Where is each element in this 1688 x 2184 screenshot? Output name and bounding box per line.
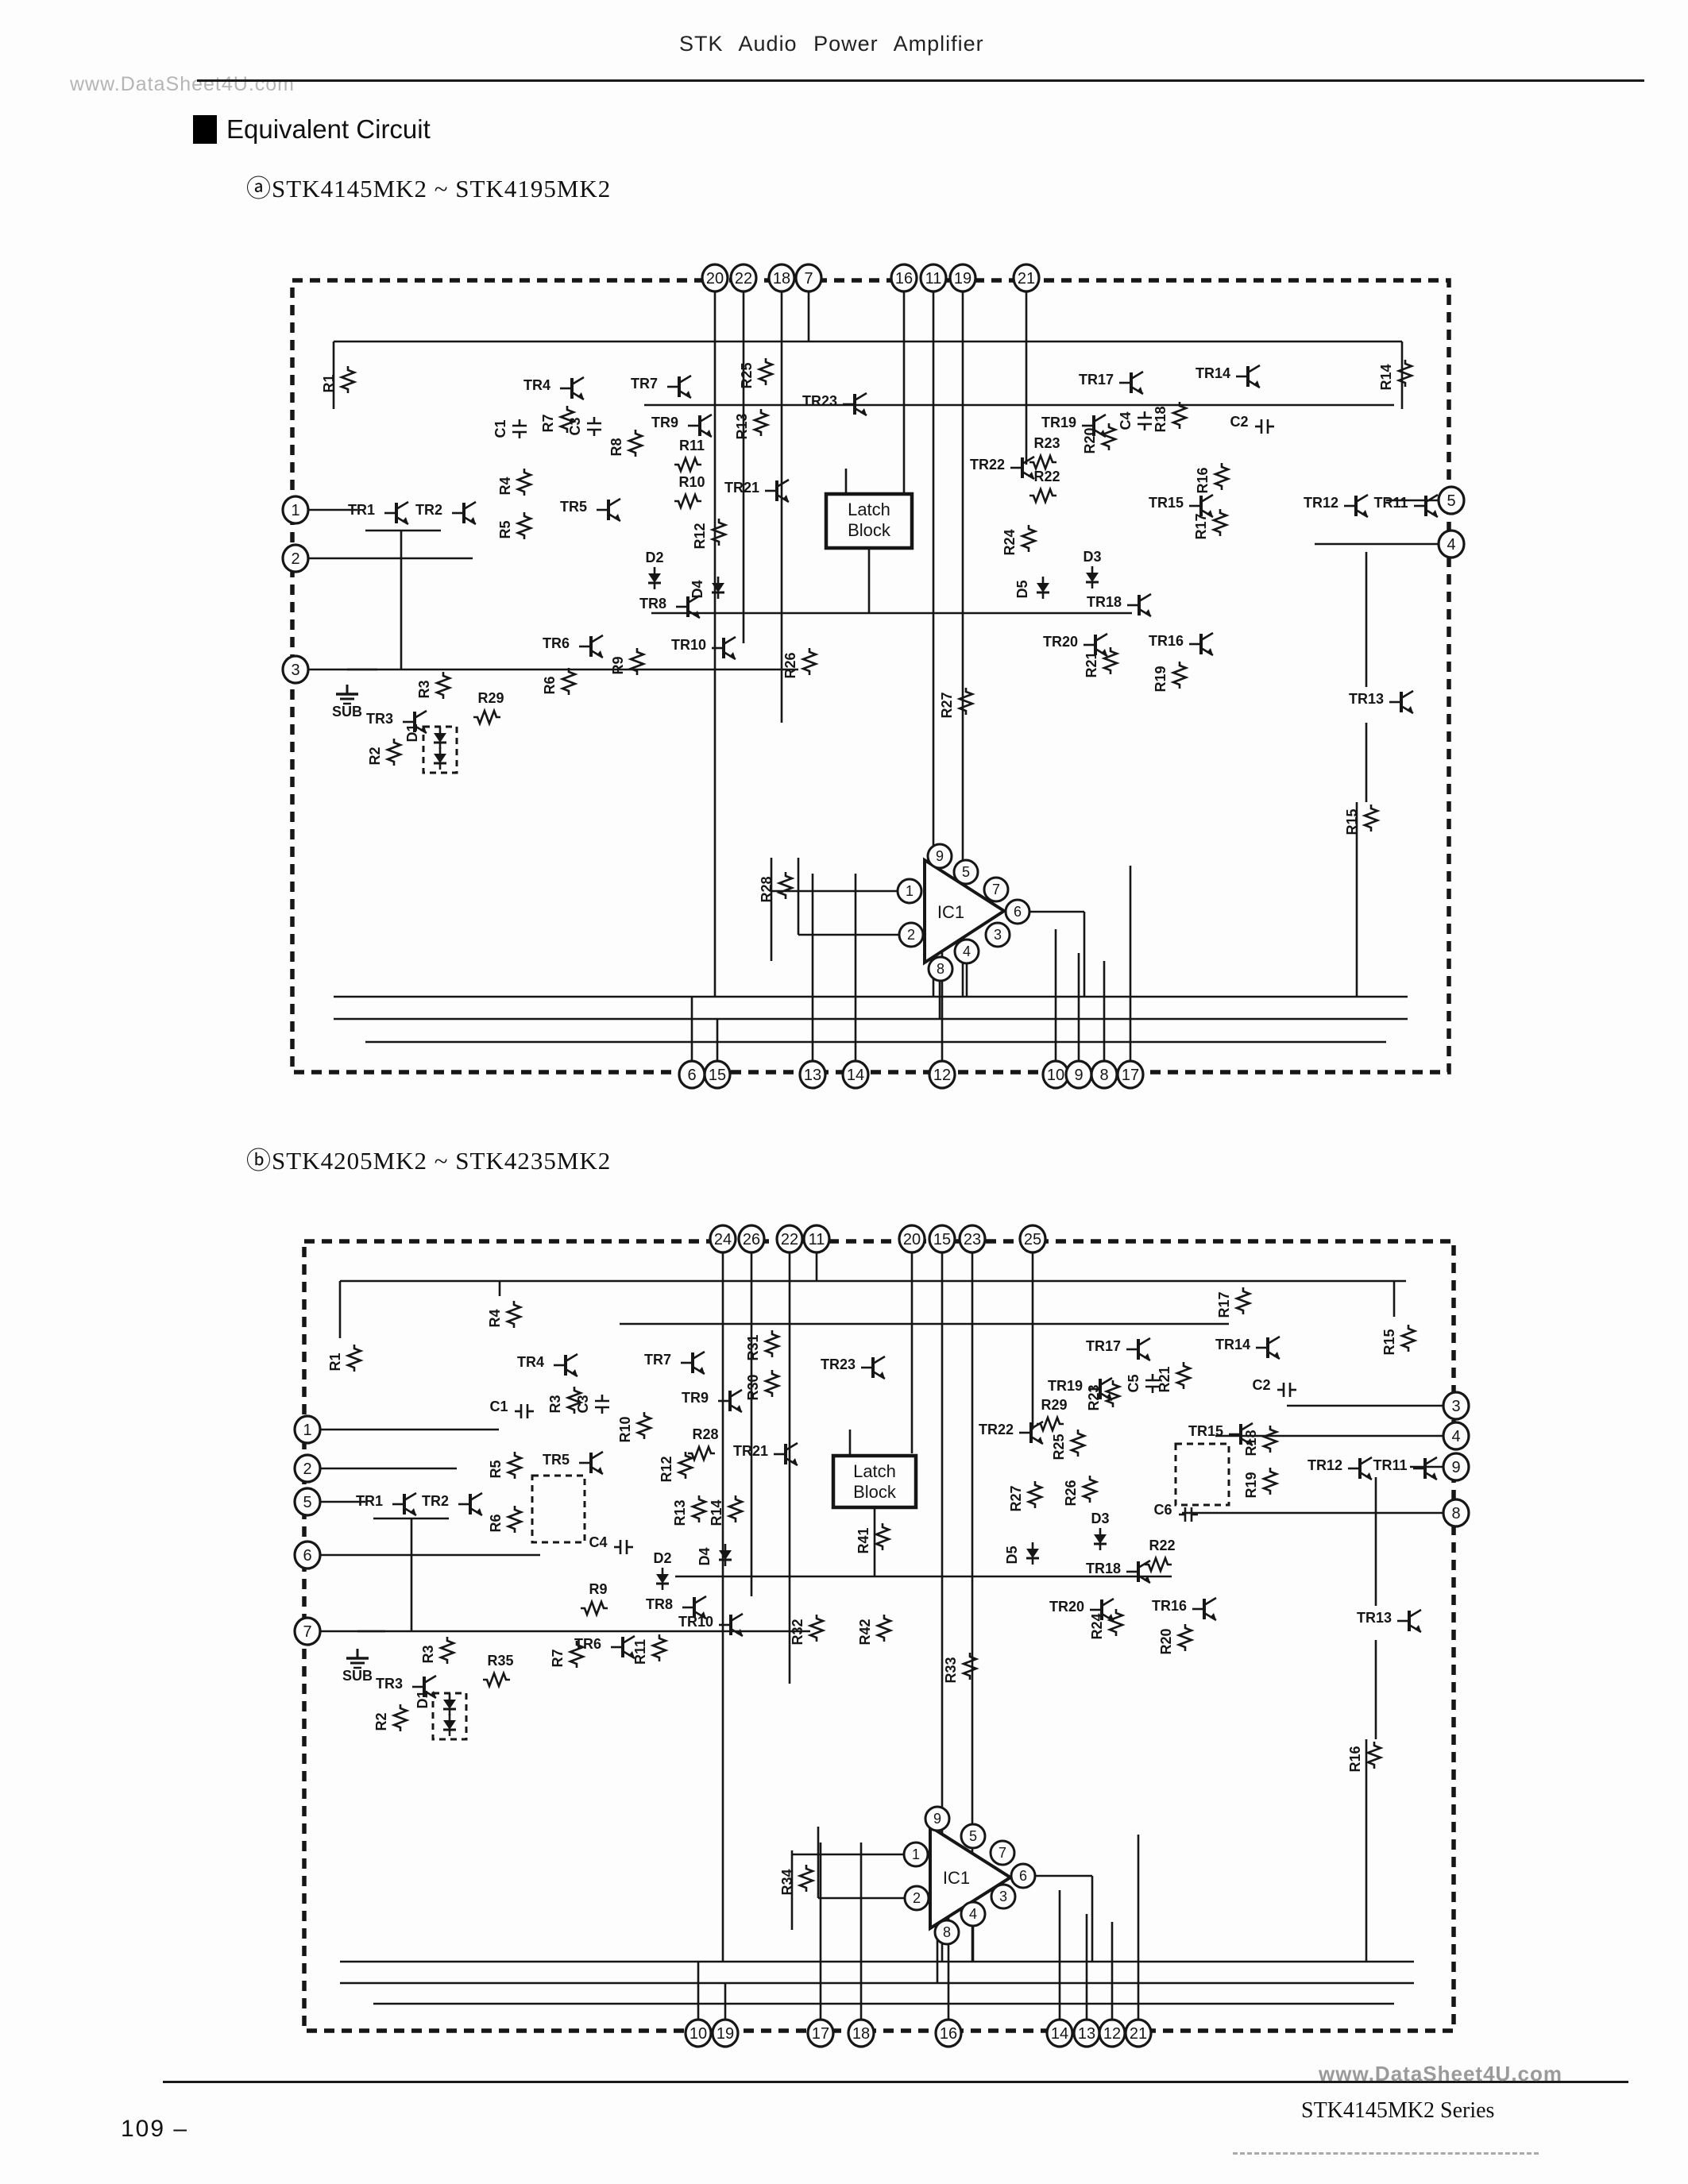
svg-text:TR7: TR7 xyxy=(644,1352,671,1368)
resistor-R19: R19 xyxy=(1153,662,1186,693)
svg-text:R28: R28 xyxy=(692,1426,718,1442)
resistor-R11: R11 xyxy=(632,1634,666,1665)
resistor-R5: R5 xyxy=(497,512,531,539)
svg-text:TR19: TR19 xyxy=(1048,1378,1083,1394)
transistor-TR23: TR23 xyxy=(821,1356,885,1379)
svg-text:TR13: TR13 xyxy=(1349,691,1384,707)
ic1-pin-5: 5 xyxy=(954,860,978,884)
svg-text:R12: R12 xyxy=(659,1456,674,1482)
circuit-border xyxy=(292,280,1449,1072)
svg-text:16: 16 xyxy=(895,270,913,287)
svg-text:R7: R7 xyxy=(540,414,556,432)
resistor-R13: R13 xyxy=(672,1495,705,1526)
pin-7: 7 xyxy=(796,264,821,291)
dashed-box xyxy=(1176,1444,1229,1505)
diode-D3: D3 xyxy=(1091,1511,1109,1550)
transistor-TR5: TR5 xyxy=(560,499,620,521)
svg-text:R19: R19 xyxy=(1153,666,1168,692)
resistor-R10: R10 xyxy=(674,474,705,507)
svg-text:26: 26 xyxy=(743,1231,760,1248)
svg-text:10: 10 xyxy=(1047,1067,1064,1084)
transistor-TR7: TR7 xyxy=(644,1352,705,1374)
transistor-TR9: TR9 xyxy=(651,415,712,437)
resistor-R26: R26 xyxy=(782,648,816,679)
svg-text:Latch: Latch xyxy=(848,500,890,519)
resistor-R3: R3 xyxy=(420,1637,454,1664)
transistor-TR16: TR16 xyxy=(1149,633,1213,655)
svg-text:R15: R15 xyxy=(1344,808,1360,835)
svg-text:R18: R18 xyxy=(1153,406,1168,432)
resistor-R6: R6 xyxy=(488,1506,521,1533)
svg-text:TR2: TR2 xyxy=(415,502,442,518)
pin-11: 11 xyxy=(804,1225,829,1252)
svg-text:R22: R22 xyxy=(1149,1538,1175,1553)
svg-text:R26: R26 xyxy=(782,652,798,678)
svg-text:4: 4 xyxy=(969,1906,977,1922)
transistor-TR21: TR21 xyxy=(733,1443,798,1465)
resistor-R2: R2 xyxy=(367,739,400,766)
page-number: 109 – xyxy=(121,2116,188,2143)
resistor-R26: R26 xyxy=(1063,1476,1096,1507)
resistor-R22: R22 xyxy=(1029,469,1060,502)
datasheet-page: www.DataSheet4U.com STK Audio Power Ampl… xyxy=(0,0,1688,2184)
pin-9: 9 xyxy=(1443,1453,1469,1480)
capacitor-C2: C2 xyxy=(1230,414,1274,434)
resistor-R10: R10 xyxy=(617,1412,651,1443)
svg-text:5: 5 xyxy=(303,1494,311,1511)
svg-text:4: 4 xyxy=(963,943,971,959)
svg-text:19: 19 xyxy=(717,2025,734,2043)
transistor-TR14: TR14 xyxy=(1215,1337,1280,1359)
resistor-R18: R18 xyxy=(1243,1426,1277,1457)
watermark-top: www.DataSheet4U.com xyxy=(70,73,295,96)
circuit-a-heading: ⓐSTK4145MK2 ~ STK4195MK2 xyxy=(246,168,611,204)
svg-text:3: 3 xyxy=(994,927,1002,943)
svg-text:12: 12 xyxy=(933,1067,951,1084)
svg-text:R2: R2 xyxy=(373,1712,389,1731)
svg-text:R2: R2 xyxy=(367,747,383,765)
svg-text:R30: R30 xyxy=(745,1374,761,1400)
transistor-TR17: TR17 xyxy=(1079,372,1143,394)
svg-text:1: 1 xyxy=(906,883,914,899)
ic1-pin-4: 4 xyxy=(955,940,979,963)
pin-6: 6 xyxy=(679,1061,705,1088)
svg-text:R26: R26 xyxy=(1063,1480,1079,1506)
transistor-TR16: TR16 xyxy=(1152,1598,1216,1620)
svg-text:TR14: TR14 xyxy=(1196,365,1230,381)
ic1-pin-9: 9 xyxy=(925,1807,949,1831)
transistor-TR11: TR11 xyxy=(1373,495,1438,517)
svg-text:TR22: TR22 xyxy=(970,457,1005,473)
svg-text:9: 9 xyxy=(1451,1459,1460,1476)
resistor-R13: R13 xyxy=(734,409,767,440)
pin-17: 17 xyxy=(1118,1061,1143,1088)
svg-text:2: 2 xyxy=(913,1890,921,1906)
svg-text:6: 6 xyxy=(1019,1868,1027,1884)
svg-text:R17: R17 xyxy=(1216,1291,1232,1318)
svg-text:TR5: TR5 xyxy=(560,499,587,515)
transistor-TR1: TR1 xyxy=(356,1493,416,1515)
svg-text:2: 2 xyxy=(291,550,299,568)
svg-text:R35: R35 xyxy=(487,1653,513,1669)
svg-text:TR10: TR10 xyxy=(671,637,706,653)
resistor-R24: R24 xyxy=(1089,1609,1122,1640)
svg-text:R25: R25 xyxy=(1051,1433,1067,1460)
svg-text:R9: R9 xyxy=(589,1581,607,1597)
resistor-R4: R4 xyxy=(497,469,531,496)
svg-text:C1: C1 xyxy=(489,1399,508,1414)
circuit-b-canvas: R1R4TR4C1R3C3TR7TR9R10R28R12R13R14R5TR5R… xyxy=(302,1239,1456,2033)
ic1-opamp: IC1957126348 xyxy=(898,844,1029,981)
svg-text:TR8: TR8 xyxy=(646,1596,673,1612)
wires xyxy=(320,1252,1456,2020)
svg-text:TR5: TR5 xyxy=(543,1452,570,1468)
pin-16: 16 xyxy=(891,264,917,291)
watermark-bottom: www.DataSheet4U.com xyxy=(1319,2062,1562,2086)
transistor-TR4: TR4 xyxy=(523,377,584,399)
svg-text:R15: R15 xyxy=(1381,1329,1397,1355)
svg-text:TR15: TR15 xyxy=(1149,495,1184,511)
svg-text:R28: R28 xyxy=(759,876,774,902)
svg-text:R33: R33 xyxy=(943,1657,959,1683)
svg-text:R19: R19 xyxy=(1243,1472,1259,1498)
resistor-R23: R23 xyxy=(1029,435,1060,469)
svg-text:D4: D4 xyxy=(697,1547,713,1565)
diode-D2: D2 xyxy=(645,550,663,589)
resistor-R8: R8 xyxy=(608,430,642,457)
transistor-TR7: TR7 xyxy=(631,376,691,398)
pin-7: 7 xyxy=(295,1618,320,1645)
svg-text:R41: R41 xyxy=(856,1527,871,1553)
pin-19: 19 xyxy=(713,2020,738,2047)
bullet-square-icon xyxy=(193,115,217,144)
diode-D2: D2 xyxy=(653,1550,671,1590)
svg-text:R12: R12 xyxy=(692,523,708,549)
svg-text:C4: C4 xyxy=(1118,411,1134,430)
svg-text:R32: R32 xyxy=(790,1619,805,1645)
resistor-R41: R41 xyxy=(856,1523,889,1554)
svg-text:4: 4 xyxy=(1451,1428,1460,1445)
svg-text:R31: R31 xyxy=(745,1334,761,1360)
svg-text:TR3: TR3 xyxy=(366,711,393,727)
dashed-box xyxy=(423,727,457,773)
svg-text:8: 8 xyxy=(1099,1067,1108,1084)
diode-D1: D1 xyxy=(415,1690,431,1708)
svg-text:D2: D2 xyxy=(653,1550,671,1566)
svg-text:R13: R13 xyxy=(734,413,750,439)
resistor-R7: R7 xyxy=(550,1641,583,1668)
svg-text:TR11: TR11 xyxy=(1373,495,1408,511)
resistor-R1: R1 xyxy=(321,366,354,393)
wires xyxy=(308,291,1451,1062)
svg-text:7: 7 xyxy=(999,1845,1006,1861)
resistor-R20: R20 xyxy=(1158,1624,1192,1655)
svg-text:TR4: TR4 xyxy=(517,1354,544,1370)
svg-text:5: 5 xyxy=(962,864,970,880)
resistor-R18: R18 xyxy=(1153,402,1186,433)
svg-text:TR11: TR11 xyxy=(1373,1457,1407,1473)
transistor-TR9: TR9 xyxy=(682,1390,742,1412)
svg-text:TR7: TR7 xyxy=(631,376,658,392)
svg-text:16: 16 xyxy=(940,2025,957,2043)
resistor-R22: R22 xyxy=(1145,1538,1176,1571)
svg-text:7: 7 xyxy=(992,882,1000,897)
capacitor-C1: C1 xyxy=(492,419,527,438)
svg-text:R29: R29 xyxy=(477,690,504,706)
transistor-TR14: TR14 xyxy=(1196,365,1260,388)
svg-text:C2: C2 xyxy=(1252,1377,1270,1393)
svg-text:22: 22 xyxy=(735,270,752,287)
diode-D5: D5 xyxy=(1004,1542,1039,1565)
capacitor-C3: C3 xyxy=(567,417,601,436)
capacitor-C4: C4 xyxy=(589,1534,633,1554)
resistor-R30: R30 xyxy=(745,1370,778,1401)
resistor-R28: R28 xyxy=(759,872,792,903)
capacitor-C4: C4 xyxy=(1118,411,1152,430)
svg-text:R3: R3 xyxy=(416,680,432,698)
transistor-TR21: TR21 xyxy=(724,480,789,502)
transistor-TR6: TR6 xyxy=(543,635,603,658)
svg-text:R4: R4 xyxy=(487,1309,503,1327)
svg-text:R6: R6 xyxy=(542,676,558,694)
pin-2: 2 xyxy=(295,1455,320,1482)
svg-text:TR8: TR8 xyxy=(639,596,666,612)
svg-text:2: 2 xyxy=(303,1461,311,1478)
svg-text:D3: D3 xyxy=(1091,1511,1109,1526)
svg-text:17: 17 xyxy=(812,2025,829,2043)
svg-text:11: 11 xyxy=(925,270,942,287)
pin-14: 14 xyxy=(1047,2020,1072,2047)
transistor-TR12: TR12 xyxy=(1304,495,1368,517)
transistor-TR5: TR5 xyxy=(543,1452,603,1474)
pin-26: 26 xyxy=(739,1225,764,1252)
pin-19: 19 xyxy=(950,264,975,291)
ground-sub-icon: SUB xyxy=(332,685,362,720)
svg-text:D3: D3 xyxy=(1083,549,1101,565)
svg-text:6: 6 xyxy=(303,1547,311,1565)
svg-text:TR12: TR12 xyxy=(1304,495,1338,511)
resistor-R11: R11 xyxy=(674,438,705,471)
svg-text:R7: R7 xyxy=(550,1649,566,1667)
resistor-R20: R20 xyxy=(1082,423,1115,454)
resistor-R34: R34 xyxy=(779,1865,813,1896)
pin-17: 17 xyxy=(808,2020,833,2047)
svg-text:23: 23 xyxy=(964,1231,981,1248)
svg-text:1: 1 xyxy=(291,502,299,519)
header-rule xyxy=(197,79,1644,82)
svg-text:TR4: TR4 xyxy=(523,377,550,393)
circuit-a-canvas: R1TR4C1R7C3R4R5TR5TR1TR2R8TR7TR9R11R10TR… xyxy=(290,278,1451,1075)
svg-text:R23: R23 xyxy=(1033,435,1060,451)
ic1-pin-7: 7 xyxy=(991,1841,1014,1865)
svg-text:TR21: TR21 xyxy=(724,480,759,496)
svg-text:R16: R16 xyxy=(1195,467,1211,493)
svg-text:5: 5 xyxy=(969,1828,977,1844)
page-title: STK Audio Power Amplifier xyxy=(679,32,984,56)
ic1-pin-7: 7 xyxy=(984,878,1008,901)
resistor-R32: R32 xyxy=(790,1615,823,1646)
pin-13: 13 xyxy=(1074,2020,1099,2047)
diode-D4: D4 xyxy=(689,577,724,599)
svg-text:R14: R14 xyxy=(1378,364,1394,390)
resistor-R27: R27 xyxy=(1008,1481,1041,1512)
resistor-R33: R33 xyxy=(943,1653,976,1684)
svg-text:R10: R10 xyxy=(678,474,705,490)
resistor-R16: R16 xyxy=(1347,1742,1381,1773)
svg-text:R21: R21 xyxy=(1083,651,1099,677)
pin-15: 15 xyxy=(705,1061,730,1088)
resistor-R19: R19 xyxy=(1243,1468,1277,1499)
svg-text:R18: R18 xyxy=(1243,1430,1259,1456)
resistor-R12: R12 xyxy=(659,1452,692,1483)
pin-25: 25 xyxy=(1020,1225,1045,1252)
svg-text:13: 13 xyxy=(804,1067,821,1084)
resistor-R25: R25 xyxy=(1051,1430,1084,1461)
svg-text:TR23: TR23 xyxy=(821,1356,856,1372)
svg-text:R5: R5 xyxy=(497,520,513,538)
svg-text:3: 3 xyxy=(999,1889,1007,1904)
svg-text:TR2: TR2 xyxy=(422,1493,449,1509)
pin-8: 8 xyxy=(1443,1499,1469,1526)
dashed-box xyxy=(532,1476,585,1542)
svg-text:C3: C3 xyxy=(575,1395,591,1413)
diode-D1: D1 xyxy=(404,723,420,742)
pin-23: 23 xyxy=(960,1225,985,1252)
svg-text:R5: R5 xyxy=(488,1460,504,1478)
svg-text:TR20: TR20 xyxy=(1043,634,1078,650)
svg-text:6: 6 xyxy=(1014,904,1022,920)
capacitor-C1: C1 xyxy=(489,1399,534,1418)
svg-text:D4: D4 xyxy=(689,580,705,598)
ic1-pin-1: 1 xyxy=(898,879,921,903)
resistor-R42: R42 xyxy=(857,1615,890,1646)
svg-text:13: 13 xyxy=(1078,2025,1095,2043)
resistor-R1: R1 xyxy=(327,1345,361,1372)
svg-text:R3: R3 xyxy=(547,1395,563,1413)
svg-text:C6: C6 xyxy=(1153,1502,1172,1518)
dashed-box xyxy=(433,1693,466,1739)
svg-text:R22: R22 xyxy=(1033,469,1060,484)
pin-5: 5 xyxy=(295,1488,320,1515)
ic1-pin-6: 6 xyxy=(1006,900,1029,924)
resistor-R28: R28 xyxy=(688,1426,719,1460)
svg-text:TR9: TR9 xyxy=(682,1390,709,1406)
svg-text:R14: R14 xyxy=(709,1499,724,1526)
svg-text:R25: R25 xyxy=(739,362,755,388)
svg-text:4: 4 xyxy=(1447,536,1455,554)
resistor-R14: R14 xyxy=(1378,360,1412,391)
svg-text:9: 9 xyxy=(936,848,944,864)
pin-24: 24 xyxy=(710,1225,736,1252)
resistor-R9: R9 xyxy=(581,1581,608,1615)
svg-text:R42: R42 xyxy=(857,1619,873,1645)
svg-text:5: 5 xyxy=(1447,492,1455,510)
ground-sub-icon: SUB xyxy=(342,1649,373,1684)
resistor-R24: R24 xyxy=(1002,525,1035,556)
resistor-R9: R9 xyxy=(610,648,643,675)
transistor-TR10: TR10 xyxy=(671,637,736,659)
pin-3: 3 xyxy=(283,656,308,683)
pin-20: 20 xyxy=(899,1225,925,1252)
svg-text:R20: R20 xyxy=(1158,1628,1174,1654)
svg-text:TR17: TR17 xyxy=(1086,1338,1121,1354)
svg-text:20: 20 xyxy=(706,270,724,287)
svg-text:8: 8 xyxy=(943,1924,951,1940)
ic1-pin-6: 6 xyxy=(1011,1864,1035,1888)
capacitor-C5: C5 xyxy=(1126,1374,1160,1393)
svg-text:8: 8 xyxy=(1451,1505,1460,1522)
svg-text:9: 9 xyxy=(933,1811,941,1827)
resistor-R6: R6 xyxy=(542,668,575,695)
pin-4: 4 xyxy=(1443,1422,1469,1449)
svg-text:TR9: TR9 xyxy=(651,415,678,430)
resistor-R15: R15 xyxy=(1344,805,1377,835)
pin-22: 22 xyxy=(777,1225,802,1252)
transistor-TR17: TR17 xyxy=(1086,1338,1150,1360)
svg-text:TR13: TR13 xyxy=(1357,1610,1392,1626)
resistor-R21: R21 xyxy=(1157,1362,1190,1393)
svg-text:18: 18 xyxy=(852,2025,870,2043)
footer-series-title: STK4145MK2 Series xyxy=(1301,2098,1494,2124)
resistor-R29: R29 xyxy=(473,690,504,723)
pin-18: 18 xyxy=(848,2020,874,2047)
svg-text:IC1: IC1 xyxy=(937,902,964,922)
diode-D3: D3 xyxy=(1083,549,1101,588)
circuit-b-heading: ⓑSTK4205MK2 ~ STK4235MK2 xyxy=(246,1140,611,1176)
svg-text:9: 9 xyxy=(1074,1067,1083,1084)
svg-text:R11: R11 xyxy=(679,438,705,453)
svg-text:TR22: TR22 xyxy=(979,1422,1014,1437)
svg-text:TR17: TR17 xyxy=(1079,372,1114,388)
resistor-R12: R12 xyxy=(692,519,725,550)
resistor-R5: R5 xyxy=(488,1452,521,1479)
transistor-TR13: TR13 xyxy=(1349,691,1413,713)
diode-D5: D5 xyxy=(1014,577,1049,599)
transistor-TR13: TR13 xyxy=(1357,1610,1421,1632)
svg-text:R27: R27 xyxy=(939,692,955,718)
svg-text:R8: R8 xyxy=(608,438,624,456)
svg-text:TR18: TR18 xyxy=(1086,1561,1121,1576)
svg-text:D1: D1 xyxy=(404,723,420,742)
svg-text:Latch: Latch xyxy=(853,1461,896,1481)
pin-15: 15 xyxy=(929,1225,955,1252)
ic1-pin-3: 3 xyxy=(991,1885,1015,1908)
pin-22: 22 xyxy=(731,264,756,291)
svg-text:TR10: TR10 xyxy=(678,1614,713,1630)
resistor-R2: R2 xyxy=(373,1704,407,1731)
svg-text:R10: R10 xyxy=(617,1416,633,1442)
svg-text:TR21: TR21 xyxy=(733,1443,768,1459)
svg-text:R1: R1 xyxy=(327,1352,343,1371)
pin-1: 1 xyxy=(283,496,308,523)
svg-text:24: 24 xyxy=(714,1231,732,1248)
resistor-R3: R3 xyxy=(416,672,450,699)
resistor-R25: R25 xyxy=(739,358,772,389)
svg-text:19: 19 xyxy=(954,270,971,287)
ic1-pin-5: 5 xyxy=(961,1824,985,1848)
svg-text:TR20: TR20 xyxy=(1049,1599,1084,1615)
resistor-R31: R31 xyxy=(745,1330,778,1361)
resistor-R35: R35 xyxy=(483,1653,514,1686)
svg-text:D5: D5 xyxy=(1014,580,1030,598)
svg-text:R11: R11 xyxy=(632,1639,648,1665)
svg-text:R4: R4 xyxy=(497,477,513,495)
ic1-pin-9: 9 xyxy=(928,844,952,868)
resistor-R14: R14 xyxy=(709,1495,742,1526)
latch-block: LatchBlock xyxy=(826,494,912,548)
svg-text:18: 18 xyxy=(773,270,790,287)
pin-3: 3 xyxy=(1443,1392,1469,1419)
